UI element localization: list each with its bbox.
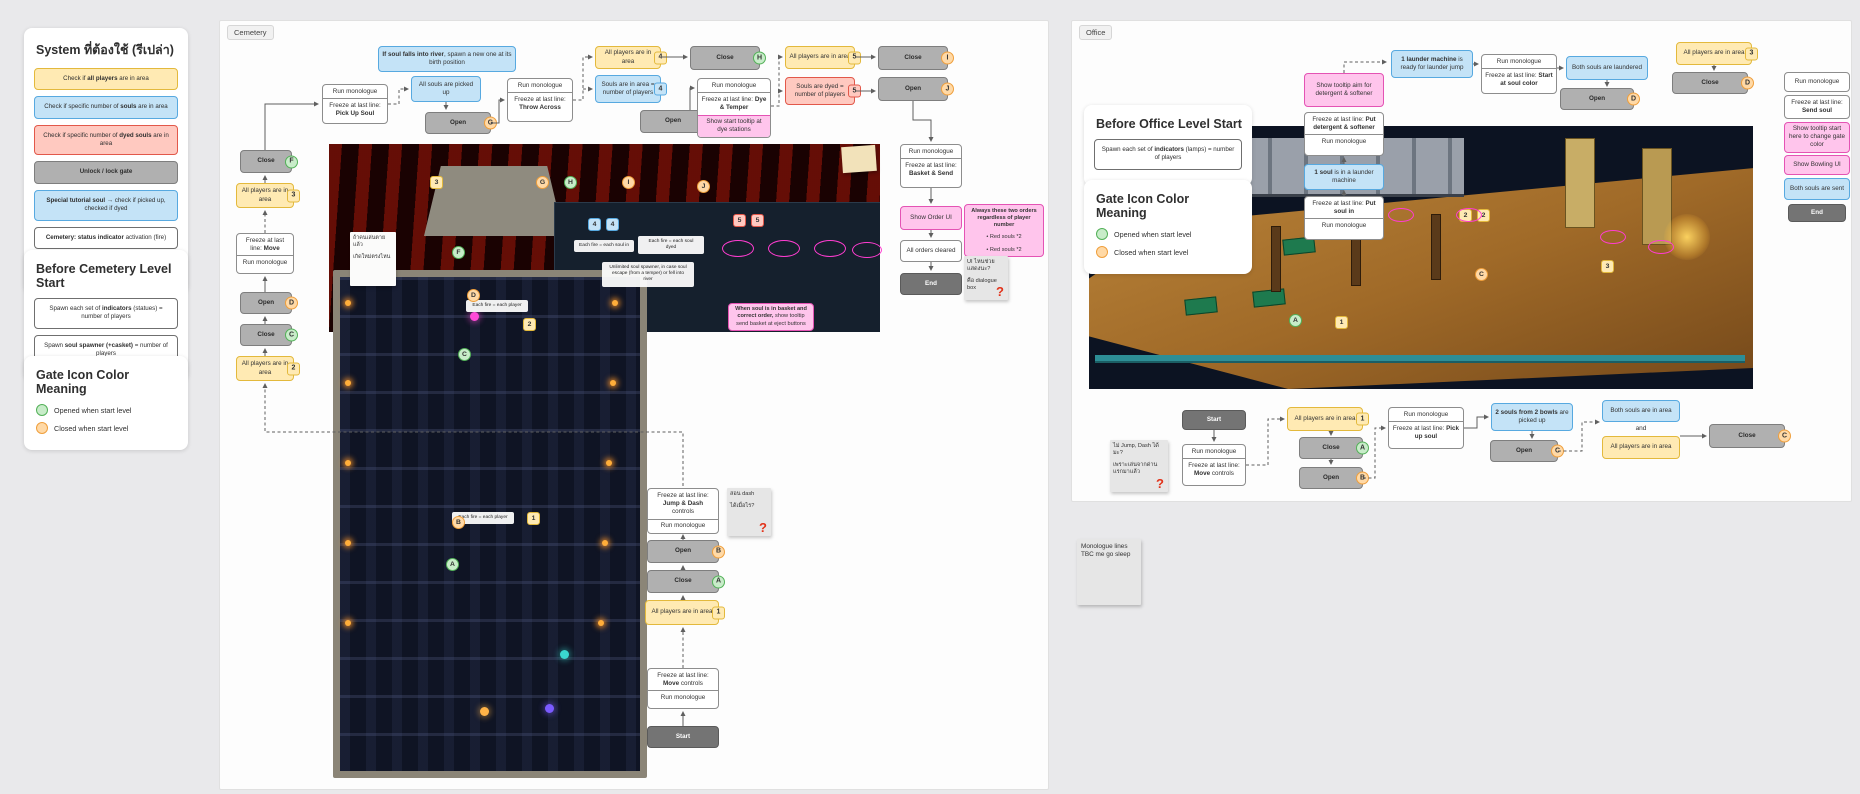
players-area-4-text: All players are in area: [596, 47, 660, 67]
basket-monologue-row: Freeze at last line: Basket & Send: [901, 158, 961, 180]
figjam-board-canvas[interactable]: System ที่ต้องใช้ (รีเปล่า) Check if all…: [0, 0, 1860, 794]
gate-green-icon: [36, 404, 48, 416]
jump-dash-monologue-row: Freeze at last line: Jump & Dash control…: [648, 489, 718, 519]
pink-speech-bubble-outline: [1456, 208, 1482, 222]
gate-badge-F: F: [285, 155, 298, 168]
soul-sprite: [480, 707, 489, 716]
souls-laundered-text: Both souls are laundered: [1567, 62, 1647, 74]
gate-close-h-text: Close: [691, 52, 759, 64]
souls-laundered[interactable]: Both souls are laundered: [1566, 56, 1648, 80]
gate-open-g[interactable]: OpenG: [425, 112, 491, 134]
orders-cleared-text: All orders cleared: [901, 245, 961, 257]
map-gate-badge-G: G: [536, 176, 549, 189]
players-area-5[interactable]: All players are in area5: [785, 46, 855, 69]
map-gate-badge-5: 5: [751, 214, 764, 227]
dash-note-row: สอน dash: [727, 488, 771, 500]
gate-color-tooltip-text: Show tooltip start here to change gate c…: [1785, 123, 1849, 152]
gate-badge-2: 2: [287, 362, 300, 375]
office-move-monologue[interactable]: Run monologueFreeze at last line: Move c…: [1182, 444, 1246, 486]
dye-monologue-row: Freeze at last line: Dye & Temper: [698, 92, 770, 114]
gate-badge-C: C: [285, 329, 298, 342]
system-rule-1[interactable]: Check if specific number of souls are in…: [34, 96, 178, 118]
souls-picked-text: All souls are picked up: [412, 79, 480, 99]
gate-open-c-office[interactable]: OpenC: [1490, 440, 1558, 462]
gate-open-j-text: Open: [879, 83, 947, 95]
desk: [1184, 296, 1217, 315]
dye-monologue-row: Show start tooltip at dye stations: [698, 115, 770, 137]
detergent-monologue[interactable]: Freeze at last line: Put detergent & sof…: [1304, 112, 1384, 156]
souls-dyed-5-text: Souls are dyed = number of players: [786, 81, 854, 101]
players-area-3[interactable]: All players are in area3: [236, 183, 294, 208]
throw-monologue-row: Freeze at last line: Throw Across: [508, 92, 572, 114]
soul-sprite: [470, 312, 479, 321]
souls-area-4[interactable]: Souls are in area = number of players4: [595, 75, 661, 103]
soul-sprite: [560, 650, 569, 659]
office-move-monologue-row: Freeze at last line: Move controls: [1183, 458, 1245, 480]
gate-legend-card[interactable]: Gate Icon Color Meaning Opened when star…: [24, 356, 188, 450]
players-area-1-office-text: All players are in area: [1288, 413, 1362, 425]
gate-meaning-row-orange: Closed when start level: [1096, 246, 1240, 258]
fire-indicator: [612, 300, 618, 306]
pink-speech-bubble-outline: [1648, 240, 1674, 254]
gate-close-a[interactable]: CloseA: [647, 570, 719, 593]
move-monologue-mid[interactable]: Freeze at last line: MoveRun monologue: [236, 233, 294, 274]
freeze-send-soul[interactable]: Freeze at last line: Send soul: [1784, 95, 1850, 119]
respawn-note-row: ถ้าคนเล่นตายแล้ว: [350, 232, 396, 251]
map-gate-badge-2: 2: [523, 318, 536, 331]
cemetery-end[interactable]: End: [900, 273, 962, 295]
players-area-1-text: All players are in area: [646, 606, 718, 618]
monologue-sticky-note[interactable]: Monologue lines TBC me go sleep: [1077, 539, 1141, 605]
gate-open-j[interactable]: OpenJ: [878, 77, 948, 101]
conveyor-belt: [1095, 355, 1745, 361]
lamp-glow: [1664, 214, 1710, 260]
pink-speech-bubble-outline: [814, 240, 846, 257]
orders-note-row: • Red souls *2: [965, 244, 1043, 256]
gate-meaning-row-green: Opened when start level: [1096, 228, 1240, 240]
spawner-note-text: Unlimited soul spawner, in case soul esc…: [604, 263, 692, 286]
pickup-soul-monologue-row: Freeze at last line: Pick up soul: [1389, 421, 1463, 443]
soul-in-machine[interactable]: 1 soul is in a launder machine: [1304, 164, 1384, 190]
gate-badge-J: J: [941, 83, 954, 96]
gate-close-a-office-text: Close: [1300, 442, 1362, 454]
basket-tooltip-note[interactable]: When soul is in basket and correct order…: [728, 303, 814, 331]
cabinet: [1565, 138, 1595, 228]
players-area-4[interactable]: All players are in area4: [595, 46, 661, 69]
gate-badge-B: B: [712, 545, 725, 558]
dialogue-note-row: UI ไหนช่วยแสดงนะ?: [964, 256, 1008, 276]
gate-close-c[interactable]: CloseC: [240, 324, 292, 346]
dash-note-row: ได้เมื่อไร?: [727, 500, 771, 512]
office-dash-note-row: ไม่ Jump, Dash ได้มะ?: [1110, 440, 1168, 460]
dye-monologue[interactable]: Run monologueFreeze at last line: Dye & …: [697, 78, 771, 138]
gate-color-tooltip[interactable]: Show tooltip start here to change gate c…: [1784, 122, 1850, 153]
map-gate-badge-3: 3: [430, 176, 443, 189]
players-area-1[interactable]: All players are in area1: [645, 600, 719, 625]
orders-note-row: • Red souls *2: [965, 232, 1043, 244]
gate-close-i[interactable]: CloseI: [878, 46, 948, 70]
map-gate-badge-F: F: [452, 246, 465, 259]
players-area-3-text: All players are in area: [237, 185, 293, 205]
jump-dash-monologue-row: Run monologue: [648, 519, 718, 533]
players-area-3-office[interactable]: All players are in area3: [1676, 42, 1752, 65]
before-office-card[interactable]: Before Office Level Start Spawn each set…: [1084, 105, 1252, 186]
fire-indicator: [345, 540, 351, 546]
gate-orange-icon: [36, 422, 48, 434]
gate-badge-A: A: [1356, 442, 1369, 455]
partition-wall: [1431, 214, 1441, 280]
bowling-ui-text: Show Bowling UI: [1785, 159, 1849, 171]
partition-wall: [1271, 226, 1281, 292]
and-label-text: and: [1602, 423, 1680, 435]
souls-sent-text: Both souls are sent: [1785, 183, 1849, 195]
detergent-monologue-row: Run monologue: [1305, 134, 1383, 148]
freeze-send-soul-text: Freeze at last line: Send soul: [1785, 97, 1849, 117]
before-office-rule[interactable]: Spawn each set of indicators (lamps) = n…: [1094, 139, 1242, 170]
map-gate-badge-4: 4: [606, 218, 619, 231]
pink-speech-bubble-outline: [768, 240, 800, 257]
before-cemetery-title: Before Cemetery Level Start: [36, 262, 178, 290]
gate-close-c-office[interactable]: CloseC: [1709, 424, 1785, 448]
move-controls-monologue[interactable]: Freeze at last line: Move controlsRun mo…: [647, 668, 719, 709]
gate-meaning-text: Opened when start level: [1114, 230, 1192, 239]
players-area-office[interactable]: All players are in area: [1602, 436, 1680, 459]
gate-badge-D: D: [285, 297, 298, 310]
before-cemetery-rule-0[interactable]: Spawn each set of indicators (statues) =…: [34, 298, 178, 329]
office-end[interactable]: End: [1788, 204, 1846, 222]
map-gate-badge-3: 3: [1601, 260, 1614, 273]
souls-sent[interactable]: Both souls are sent: [1784, 178, 1850, 200]
gate-close-c-office-text: Close: [1710, 430, 1784, 442]
players-area-5-text: All players are in area: [786, 51, 854, 63]
gate-badge-A: A: [712, 575, 725, 588]
gate-close-i-text: Close: [879, 52, 947, 64]
gate-meaning-text: Closed when start level: [54, 424, 128, 433]
gate-close-a-text: Close: [648, 575, 718, 587]
jump-dash-monologue[interactable]: Freeze at last line: Jump & Dash control…: [647, 488, 719, 534]
gate-open-g-text: Open: [426, 117, 490, 129]
fire-player-label-1[interactable]: Each fire = each player: [466, 300, 528, 312]
gate-open-d-office-text: Open: [1561, 93, 1633, 105]
gate-badge-1: 1: [1356, 413, 1369, 426]
souls-picked[interactable]: All souls are picked up: [411, 76, 481, 102]
pink-speech-bubble-outline: [852, 242, 882, 258]
gate-badge-3: 3: [1745, 47, 1758, 60]
detergent-tooltip-text: Show tooltip aim for detergent & softene…: [1305, 80, 1383, 100]
sticky-line: TBC me go sleep: [1081, 551, 1137, 559]
system-legend-title: System ที่ต้องใช้ (รีเปล่า): [36, 40, 178, 60]
dash-note[interactable]: สอน dashได้เมื่อไร??: [727, 488, 771, 536]
system-rule-0[interactable]: Check if all players are in area: [34, 68, 178, 90]
office-section-label[interactable]: Office: [1079, 25, 1112, 40]
office-move-monologue-row: Run monologue: [1183, 445, 1245, 458]
send-monologue[interactable]: Run monologue: [1784, 72, 1850, 92]
both-souls-area[interactable]: Both souls are in area: [1602, 400, 1680, 422]
fire-indicator: [610, 380, 616, 386]
gate-badge-5: 5: [848, 51, 861, 64]
folded-paper-note[interactable]: [841, 145, 877, 173]
map-gate-badge-H: H: [564, 176, 577, 189]
respawn-note-row: เกิดใหม่ตรงไหน: [350, 251, 396, 263]
cemetery-start[interactable]: Start: [647, 726, 719, 748]
map-gate-badge-A: A: [1289, 314, 1302, 327]
river-note[interactable]: If soul falls into river, spawn a new on…: [378, 46, 516, 72]
fire-soul-in-label-text: Each fire = each soul in: [576, 241, 632, 251]
detergent-monologue-row: Freeze at last line: Put detergent & sof…: [1305, 113, 1383, 134]
gate-open-b-office[interactable]: OpenB: [1299, 467, 1363, 489]
soul-color-monologue-row: Run monologue: [1482, 55, 1556, 68]
soul-sprite: [545, 704, 554, 713]
pickup-soul-monologue[interactable]: Run monologueFreeze at last line: Pick u…: [1388, 407, 1464, 449]
gate-legend-title: Gate Icon Color Meaning: [36, 368, 178, 396]
bowls-picked-text: 2 souls from 2 bowls are picked up: [1492, 407, 1572, 427]
launder-ready-note-text: 1 launder machine is ready for launder j…: [1392, 54, 1472, 74]
players-area-1-office[interactable]: All players are in area1: [1287, 407, 1363, 431]
system-rule-2[interactable]: Check if specific number of dyed souls a…: [34, 125, 178, 156]
office-start[interactable]: Start: [1182, 410, 1246, 430]
detergent-tooltip[interactable]: Show tooltip aim for detergent & softene…: [1304, 73, 1384, 107]
gate-green-icon: [1096, 228, 1108, 240]
map-gate-badge-1: 1: [1335, 316, 1348, 329]
gate-open-i-text: Open: [641, 115, 705, 127]
pickup-monologue-row: Freeze at last line: Pick Up Soul: [323, 98, 387, 120]
sticky-line: Monologue lines: [1081, 543, 1137, 551]
map-gate-badge-I: I: [622, 176, 635, 189]
soul-color-monologue-row: Freeze at last line: Start at soul color: [1482, 68, 1556, 90]
put-soul-monologue-row: Run monologue: [1305, 218, 1383, 232]
move-controls-monologue-row: Run monologue: [648, 690, 718, 704]
bowling-ui[interactable]: Show Bowling UI: [1784, 155, 1850, 175]
fire-indicator: [606, 460, 612, 466]
soul-in-machine-text: 1 soul is in a launder machine: [1305, 167, 1383, 187]
gate-close-d-office-text: Close: [1673, 77, 1747, 89]
system-rule-4[interactable]: Special tutorial soul → check if picked …: [34, 190, 178, 221]
office-gate-legend-items: Opened when start levelClosed when start…: [1094, 228, 1242, 258]
fire-indicator: [602, 540, 608, 546]
map-gate-badge-B: B: [452, 516, 465, 529]
gate-close-d-office[interactable]: CloseD: [1672, 72, 1748, 94]
question-mark-icon: ?: [759, 521, 767, 534]
soul-color-monologue[interactable]: Run monologueFreeze at last line: Start …: [1481, 54, 1557, 94]
gate-close-f[interactable]: CloseF: [240, 150, 292, 173]
office-end-text: End: [1789, 207, 1845, 219]
gate-open-b-text: Open: [648, 545, 718, 557]
fire-indicator: [598, 620, 604, 626]
map-gate-badge-C: C: [1475, 268, 1488, 281]
office-gate-legend-card[interactable]: Gate Icon Color Meaning Opened when star…: [1084, 180, 1252, 274]
office-dash-note[interactable]: ไม่ Jump, Dash ได้มะ?เพราะเล่นจากด่านแรก…: [1110, 440, 1168, 492]
gate-open-d-text: Open: [241, 297, 291, 309]
gate-meaning-text: Closed when start level: [1114, 248, 1188, 257]
system-rule-5[interactable]: Cemetery: status indicator activation (f…: [34, 227, 178, 249]
put-soul-monologue-row: Freeze at last line: Put soul in: [1305, 197, 1383, 218]
pink-speech-bubble-outline: [1600, 230, 1626, 244]
gate-close-f-text: Close: [241, 155, 291, 167]
move-monologue-mid-row: Run monologue: [237, 255, 293, 269]
map-gate-badge-J: J: [697, 180, 710, 193]
gate-open-d-office[interactable]: OpenD: [1560, 88, 1634, 110]
question-mark-icon: ?: [996, 285, 1004, 298]
gate-badge-D: D: [1627, 93, 1640, 106]
move-controls-monologue-row: Freeze at last line: Move controls: [648, 669, 718, 690]
pink-speech-bubble-outline: [722, 240, 754, 257]
dialogue-note[interactable]: UI ไหนช่วยแสดงนะ?คือ dialogue box?: [964, 256, 1008, 300]
basket-monologue[interactable]: Run monologueFreeze at last line: Basket…: [900, 144, 962, 188]
gate-badge-C: C: [1778, 430, 1791, 443]
gate-badge-I: I: [941, 52, 954, 65]
question-mark-icon: ?: [1156, 477, 1164, 490]
gate-orange-icon: [1096, 246, 1108, 258]
map-gate-badge-C: C: [458, 348, 471, 361]
gate-close-h[interactable]: CloseH: [690, 46, 760, 70]
river-note-text: If soul falls into river, spawn a new on…: [379, 49, 515, 69]
throw-monologue-row: Run monologue: [508, 79, 572, 92]
show-order-ui-text: Show Order UI: [901, 212, 961, 224]
players-area-office-text: All players are in area: [1603, 441, 1679, 453]
show-order-ui[interactable]: Show Order UI: [900, 206, 962, 230]
fire-soul-dyed-label[interactable]: Each fire = each soul dyed: [638, 236, 704, 254]
gate-open-c-office-text: Open: [1491, 445, 1557, 457]
souls-dyed-5[interactable]: Souls are dyed = number of players5: [785, 77, 855, 105]
pink-speech-bubble-outline: [1388, 208, 1414, 222]
pickup-monologue-row: Run monologue: [323, 85, 387, 98]
move-monologue-mid-row: Freeze at last line: Move: [237, 234, 293, 255]
gate-open-b[interactable]: OpenB: [647, 540, 719, 563]
bowls-picked[interactable]: 2 souls from 2 bowls are picked up: [1491, 403, 1573, 431]
gate-badge-1: 1: [712, 606, 725, 619]
fire-soul-in-label[interactable]: Each fire = each soul in: [574, 240, 634, 252]
system-rule-3[interactable]: Unlock / lock gate: [34, 161, 178, 183]
gate-badge-H: H: [753, 52, 766, 65]
basket-tooltip-note-text: When soul is in basket and correct order…: [729, 304, 813, 330]
gate-meaning-row-orange: Closed when start level: [36, 422, 176, 434]
gate-open-d[interactable]: OpenD: [240, 292, 292, 314]
gate-badge-G: G: [484, 117, 497, 130]
spawner-note[interactable]: Unlimited soul spawner, in case soul esc…: [602, 262, 694, 287]
and-label[interactable]: and: [1602, 423, 1680, 435]
pickup-soul-monologue-row: Run monologue: [1389, 408, 1463, 421]
players-area-2-text: All players are in area: [237, 358, 293, 378]
gate-badge-5: 5: [848, 85, 861, 98]
map-gate-badge-1: 1: [527, 512, 540, 525]
before-office-title: Before Office Level Start: [1096, 117, 1242, 131]
cemetery-section-label[interactable]: Cemetery: [227, 25, 274, 40]
office-start-text: Start: [1183, 414, 1245, 426]
gate-badge-4: 4: [654, 51, 667, 64]
cemetery-end-text: End: [901, 278, 961, 290]
fire-indicator: [345, 380, 351, 386]
fire-player-label-1-text: Each fire = each player: [468, 301, 526, 311]
players-area-2[interactable]: All players are in area2: [236, 356, 294, 381]
map-gate-badge-D: D: [467, 289, 480, 302]
gate-badge-3: 3: [287, 189, 300, 202]
fire-indicator: [345, 300, 351, 306]
map-gate-badge-4: 4: [588, 218, 601, 231]
gate-open-b-office-text: Open: [1300, 472, 1362, 484]
gate-badge-C: C: [1551, 445, 1564, 458]
pickup-monologue[interactable]: Run monologueFreeze at last line: Pick U…: [322, 84, 388, 124]
both-souls-area-text: Both souls are in area: [1603, 405, 1679, 417]
fire-soul-dyed-label-text: Each fire = each soul dyed: [640, 237, 702, 253]
send-monologue-text: Run monologue: [1785, 76, 1849, 88]
gate-close-a-office[interactable]: CloseA: [1299, 437, 1363, 459]
map-gate-badge-A: A: [446, 558, 459, 571]
gate-meaning-text: Opened when start level: [54, 406, 132, 415]
map-gate-badge-5: 5: [733, 214, 746, 227]
cemetery-start-text: Start: [648, 731, 718, 743]
basket-monologue-row: Run monologue: [901, 145, 961, 158]
dye-monologue-row: Run monologue: [698, 79, 770, 92]
orders-cleared[interactable]: All orders cleared: [900, 240, 962, 262]
fire-indicator: [345, 620, 351, 626]
gate-badge-D: D: [1741, 77, 1754, 90]
fire-indicator: [345, 460, 351, 466]
respawn-note[interactable]: ถ้าคนเล่นตายแล้วเกิดใหม่ตรงไหน: [350, 232, 396, 286]
gate-badge-B: B: [1356, 472, 1369, 485]
gate-badge-4: 4: [654, 83, 667, 96]
orders-note-row: Always these two orders regardless of pl…: [965, 205, 1043, 232]
launder-ready-note[interactable]: 1 launder machine is ready for launder j…: [1391, 50, 1473, 78]
orders-note[interactable]: Always these two orders regardless of pl…: [964, 204, 1044, 257]
players-area-3-office-text: All players are in area: [1677, 47, 1751, 59]
put-soul-monologue[interactable]: Freeze at last line: Put soul inRun mono…: [1304, 196, 1384, 240]
gate-meaning-row-green: Opened when start level: [36, 404, 176, 416]
system-legend-items: Check if all players are in areaCheck if…: [34, 68, 178, 277]
gate-legend-items: Opened when start levelClosed when start…: [34, 404, 178, 434]
throw-monologue[interactable]: Run monologueFreeze at last line: Throw …: [507, 78, 573, 122]
souls-area-4-text: Souls are in area = number of players: [596, 79, 660, 99]
office-gate-legend-title: Gate Icon Color Meaning: [1096, 192, 1242, 220]
gate-close-c-text: Close: [241, 329, 291, 341]
